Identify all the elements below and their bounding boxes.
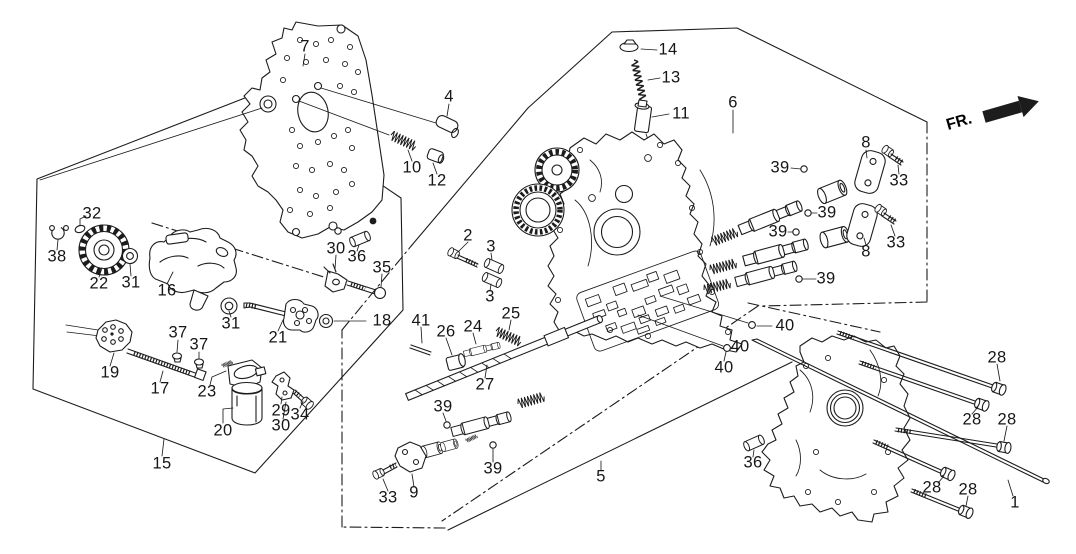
part-label-30: 30 bbox=[272, 417, 291, 436]
part-label-10: 10 bbox=[403, 159, 422, 178]
part-label-38: 38 bbox=[48, 248, 67, 267]
part-label-33: 33 bbox=[890, 172, 909, 191]
part-label-23: 23 bbox=[198, 383, 217, 402]
part-label-37: 37 bbox=[169, 324, 188, 343]
part-label-11: 11 bbox=[672, 105, 690, 124]
part-label-37: 37 bbox=[190, 336, 209, 355]
part-label-19: 19 bbox=[101, 364, 120, 383]
part-label-41: 41 bbox=[412, 312, 431, 331]
part-label-3: 3 bbox=[485, 288, 494, 307]
part-label-28: 28 bbox=[959, 481, 978, 500]
part-label-39: 39 bbox=[818, 204, 837, 223]
part-label-28: 28 bbox=[988, 349, 1007, 368]
part-label-14: 14 bbox=[659, 41, 678, 60]
part-label-25: 25 bbox=[502, 305, 521, 324]
part-label-1: 1 bbox=[1010, 494, 1019, 513]
part-label-28: 28 bbox=[963, 411, 982, 430]
part-label-4: 4 bbox=[444, 88, 453, 107]
part-label-20: 20 bbox=[214, 422, 233, 441]
part-label-5: 5 bbox=[596, 468, 605, 487]
part-label-34: 34 bbox=[291, 406, 310, 425]
part-label-40: 40 bbox=[731, 338, 750, 357]
part-label-8: 8 bbox=[861, 134, 870, 153]
part-label-33: 33 bbox=[379, 489, 398, 508]
part-label-39: 39 bbox=[769, 223, 788, 242]
part-label-8: 8 bbox=[861, 243, 870, 262]
part-label-27: 27 bbox=[476, 376, 495, 395]
part-label-39: 39 bbox=[434, 398, 453, 417]
part-label-39: 39 bbox=[771, 159, 790, 178]
part-label-26: 26 bbox=[437, 323, 456, 342]
part-label-35: 35 bbox=[373, 259, 392, 278]
part-label-7: 7 bbox=[300, 38, 309, 57]
part-label-13: 13 bbox=[662, 69, 681, 88]
part-label-30: 30 bbox=[327, 240, 346, 259]
part-label-28: 28 bbox=[923, 479, 942, 498]
part-label-39: 39 bbox=[817, 270, 836, 289]
part-label-22: 22 bbox=[90, 275, 109, 294]
part-label-39: 39 bbox=[484, 460, 503, 479]
part-label-2: 2 bbox=[463, 227, 472, 246]
part-label-3: 3 bbox=[486, 238, 495, 257]
part-label-36: 36 bbox=[744, 454, 763, 473]
part-label-16: 16 bbox=[158, 282, 177, 301]
part-label-40: 40 bbox=[776, 317, 795, 336]
part-label-32: 32 bbox=[83, 205, 102, 224]
part-label-18: 18 bbox=[373, 312, 392, 331]
part-label-9: 9 bbox=[409, 484, 418, 503]
label-layer: 7410121413116398333939833392333238223116… bbox=[0, 0, 1076, 554]
part-label-12: 12 bbox=[428, 172, 447, 191]
part-label-6: 6 bbox=[728, 94, 737, 113]
part-label-33: 33 bbox=[887, 234, 906, 253]
part-label-21: 21 bbox=[269, 329, 288, 348]
part-label-24: 24 bbox=[464, 318, 483, 337]
parts-diagram: FR. bbox=[0, 0, 1076, 554]
part-label-17: 17 bbox=[151, 380, 170, 399]
part-label-28: 28 bbox=[998, 411, 1017, 430]
part-label-36: 36 bbox=[348, 248, 367, 267]
part-label-31: 31 bbox=[222, 315, 241, 334]
part-label-40: 40 bbox=[715, 359, 734, 378]
part-label-31: 31 bbox=[122, 274, 141, 293]
part-label-15: 15 bbox=[153, 455, 172, 474]
